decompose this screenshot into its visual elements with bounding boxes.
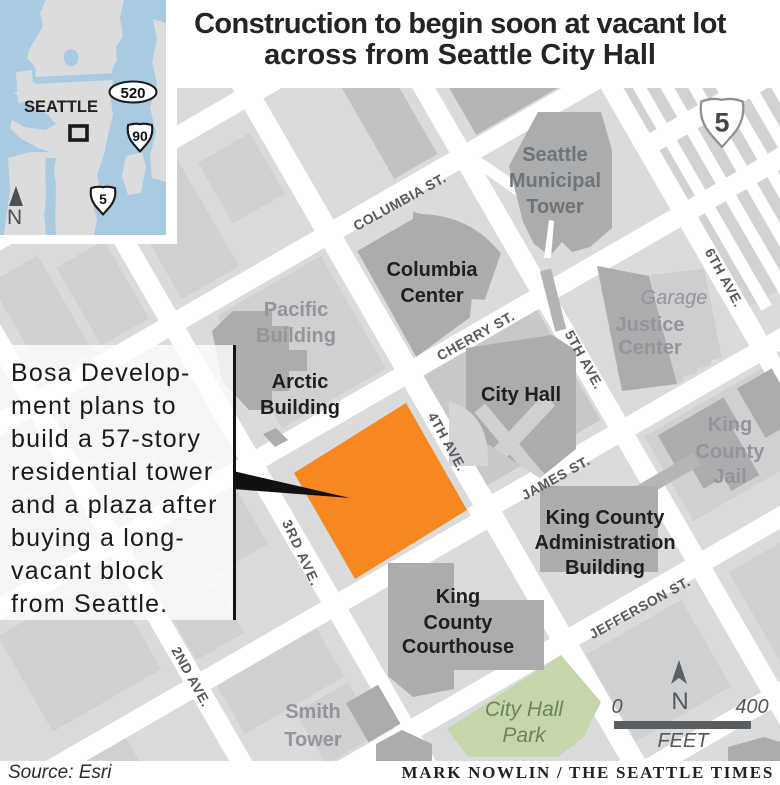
svg-text:SEATTLE: SEATTLE [24, 98, 98, 116]
svg-text:City Hall: City Hall [481, 384, 561, 406]
svg-text:90: 90 [132, 128, 148, 144]
svg-text:FEET: FEET [657, 730, 710, 752]
svg-text:N: N [671, 688, 688, 715]
svg-text:5: 5 [99, 191, 107, 207]
svg-text:0: 0 [611, 696, 622, 718]
svg-text:JusticeCenter: JusticeCenter [616, 314, 685, 359]
svg-text:Garage: Garage [641, 287, 708, 309]
svg-text:400: 400 [735, 696, 768, 718]
svg-text:5: 5 [715, 107, 730, 137]
svg-text:N: N [7, 206, 22, 229]
svg-text:520: 520 [120, 85, 145, 102]
